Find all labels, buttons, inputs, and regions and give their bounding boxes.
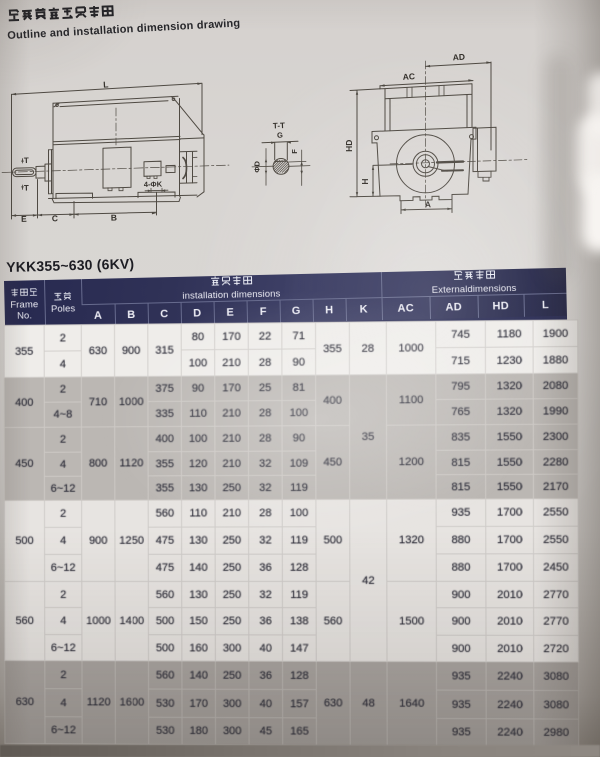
svg-text:H: H [360, 178, 370, 184]
svg-text:T: T [24, 183, 29, 192]
svg-text:AD: AD [452, 52, 465, 63]
svg-text:L: L [103, 79, 109, 89]
svg-text:AC: AC [402, 71, 415, 82]
svg-text:T-T: T-T [273, 121, 285, 131]
svg-text:T: T [24, 156, 29, 165]
svg-text:HD: HD [344, 140, 354, 152]
svg-text:B: B [111, 212, 117, 222]
svg-text:G: G [277, 130, 283, 139]
svg-text:C: C [52, 213, 58, 223]
svg-text:4-ΦK: 4-ΦK [144, 180, 163, 189]
svg-text:ΦD: ΦD [253, 160, 262, 172]
svg-text:F: F [290, 149, 299, 154]
svg-text:A: A [425, 199, 431, 209]
svg-text:E: E [21, 214, 27, 224]
